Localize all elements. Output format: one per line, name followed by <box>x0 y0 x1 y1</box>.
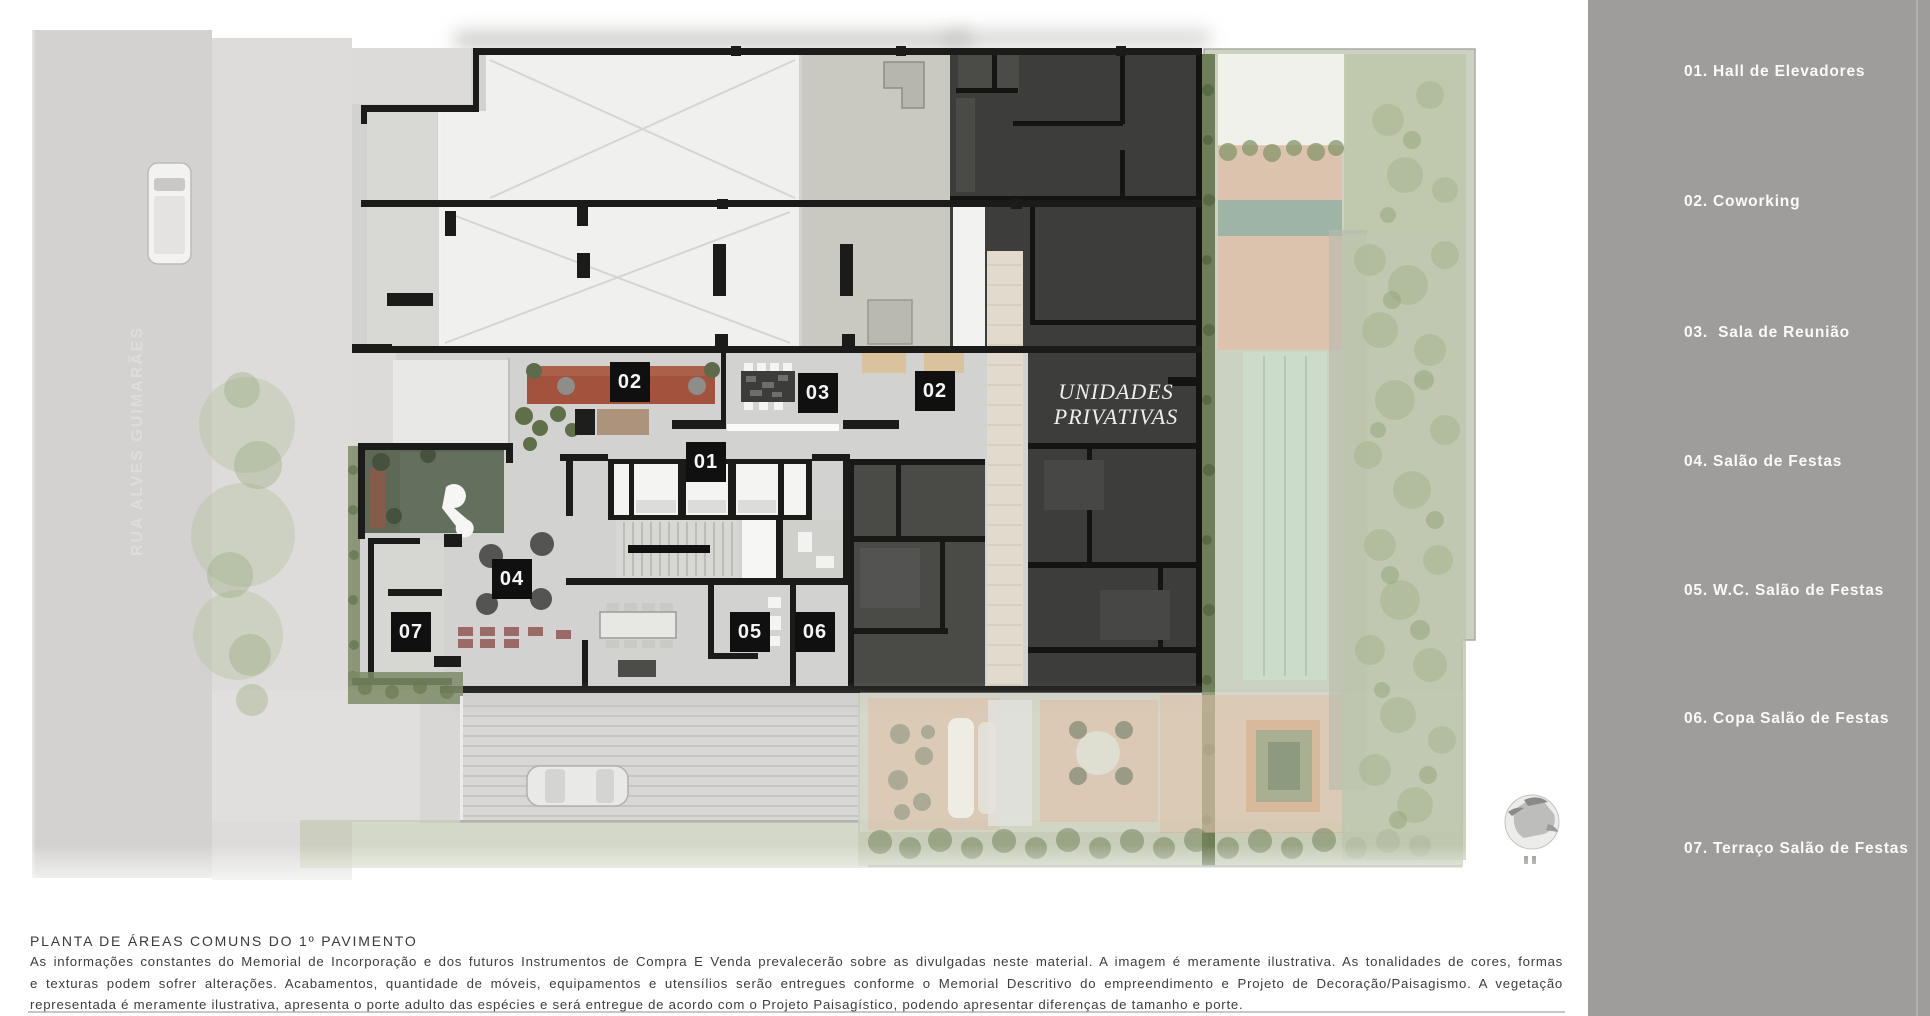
svg-text:02: 02 <box>923 380 947 402</box>
svg-text:02: 02 <box>618 371 642 393</box>
svg-text:06: 06 <box>803 621 827 643</box>
svg-text:UNIDADES: UNIDADES <box>1058 379 1174 404</box>
svg-text:PRIVATIVAS: PRIVATIVAS <box>1053 404 1178 429</box>
svg-text:05: 05 <box>738 621 762 643</box>
svg-text:03: 03 <box>806 382 830 404</box>
svg-text:RUA ALVES GUIMARÃES: RUA ALVES GUIMARÃES <box>126 326 146 556</box>
svg-text:07: 07 <box>399 621 423 643</box>
svg-text:04: 04 <box>500 568 524 590</box>
svg-text:01: 01 <box>694 451 718 473</box>
